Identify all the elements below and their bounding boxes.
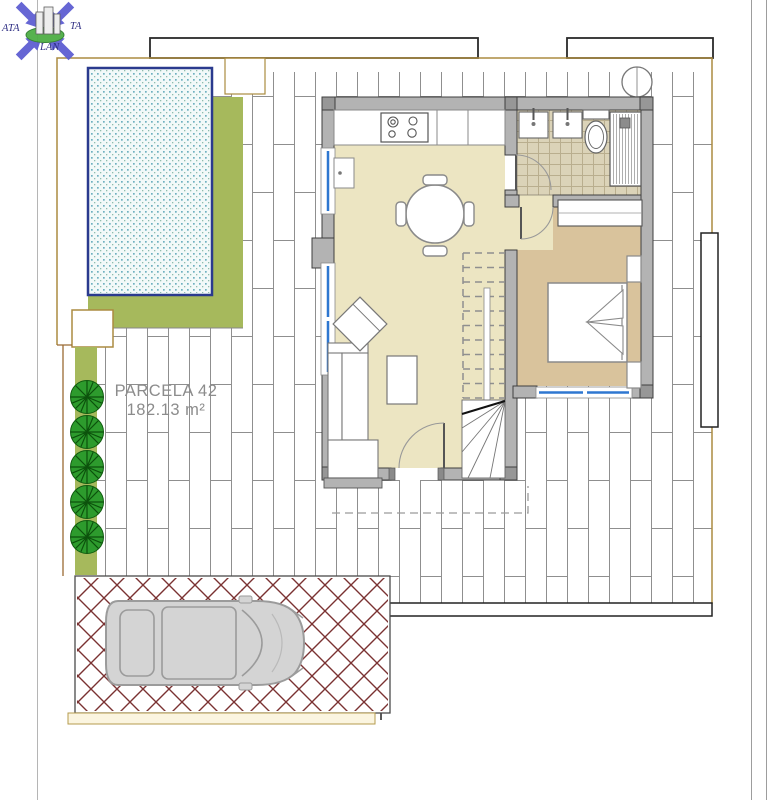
wall-top [322, 97, 653, 110]
toilet-cistern [583, 110, 609, 119]
dining-table [406, 185, 464, 243]
car-mirror [239, 683, 252, 690]
nightstand [627, 256, 641, 282]
planter-box-left [72, 310, 113, 347]
planter-box-top-right [567, 38, 713, 58]
dining-chair [396, 202, 406, 226]
shower-drain [620, 118, 630, 128]
wall-corner [505, 195, 519, 207]
dining-chair [464, 202, 474, 226]
car-top-view [106, 596, 304, 690]
corner-block [505, 97, 517, 110]
dining-chair [423, 246, 447, 256]
sink-drain [566, 122, 570, 126]
shrub-icon [71, 486, 104, 519]
logo-text-bottom: LAN [39, 42, 60, 53]
floor-bedroom-entry [517, 207, 553, 250]
cabinet-knob [338, 171, 342, 175]
dining-chair [423, 175, 447, 185]
door-jamb [438, 468, 444, 480]
shrub-icon [71, 521, 104, 554]
nightstand [627, 362, 641, 388]
floor-door-nook [519, 195, 553, 207]
buildings-icon [36, 7, 60, 34]
building [44, 7, 53, 34]
coffee-table [387, 356, 417, 404]
floor-hall [505, 207, 517, 250]
wall-right [641, 97, 653, 398]
shrub-icon [71, 416, 104, 449]
shrub-icon [71, 381, 104, 414]
floorplan-page: PARCELA 42 182.13 m² [0, 0, 768, 800]
planter-box-top-left [150, 38, 478, 58]
corner-block [640, 385, 653, 398]
floor-plan-canvas: PARCELA 42 182.13 m² [0, 0, 768, 800]
shrub-icon [71, 451, 104, 484]
side-planter [701, 233, 718, 427]
parcel-label-line2: 182.13 m² [127, 401, 206, 419]
logo-text-right: TA [70, 21, 82, 32]
corner-block [640, 97, 653, 110]
logo-text-left: ATA [1, 23, 20, 34]
driveway [68, 576, 390, 724]
entrance-opening [391, 468, 441, 480]
planter-box-small [225, 58, 265, 94]
pool-water-texture [90, 70, 210, 293]
sofa-chaise [328, 440, 378, 478]
building [36, 12, 43, 34]
car-mirror [239, 596, 252, 603]
cooktop-icon [381, 113, 428, 142]
sofa-plinth [324, 478, 382, 488]
building [54, 14, 60, 34]
wall-stairs-bedroom [505, 250, 517, 480]
parcel-label-line1: PARCELA 42 [115, 382, 218, 400]
boundary-wall-footing [381, 603, 712, 616]
door-jamb [389, 468, 395, 480]
sidewalk [68, 713, 375, 724]
wall-bedroom-bottom-left [513, 386, 537, 398]
sink-drain [532, 122, 536, 126]
sofa-seat [342, 353, 368, 440]
kitchen-cabinet [334, 158, 354, 188]
car-body [106, 601, 304, 685]
corner-block [322, 97, 335, 110]
